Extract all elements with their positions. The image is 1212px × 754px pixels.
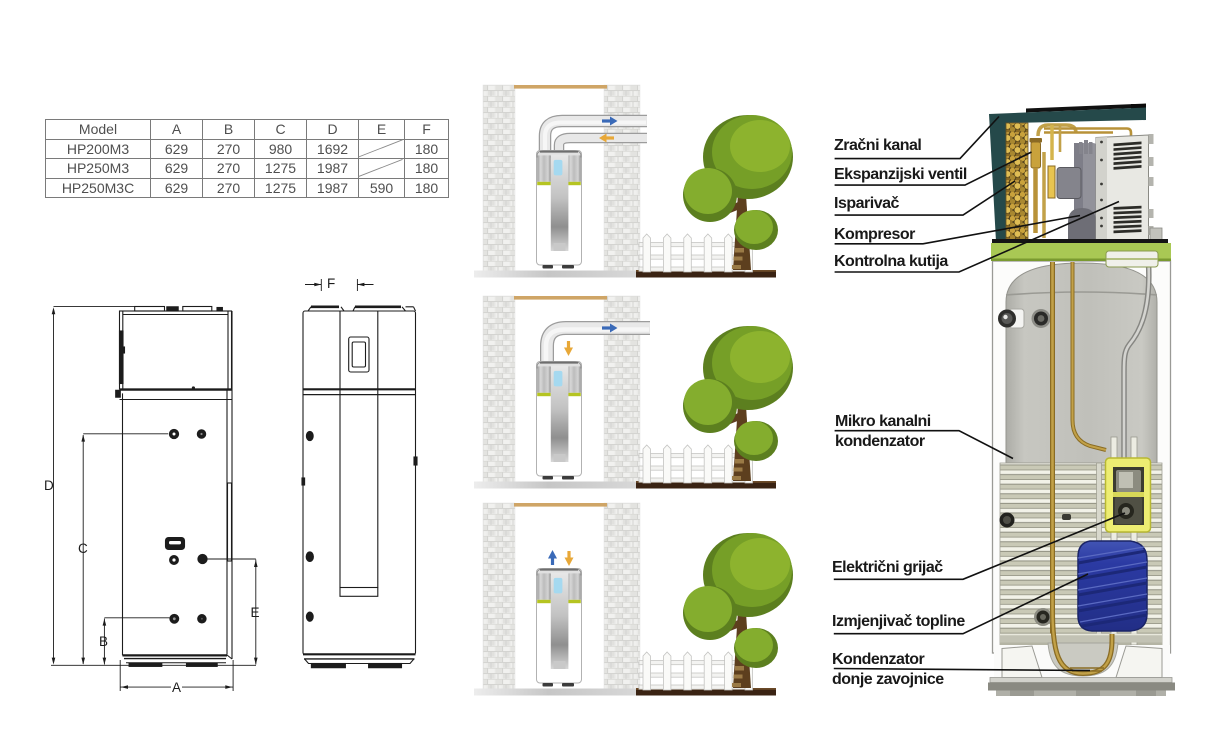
svg-text:F: F <box>327 276 335 291</box>
svg-text:B: B <box>99 634 108 649</box>
svg-text:E: E <box>251 605 260 620</box>
svg-text:D: D <box>44 478 54 493</box>
svg-text:C: C <box>78 541 88 556</box>
svg-text:A: A <box>172 680 181 695</box>
